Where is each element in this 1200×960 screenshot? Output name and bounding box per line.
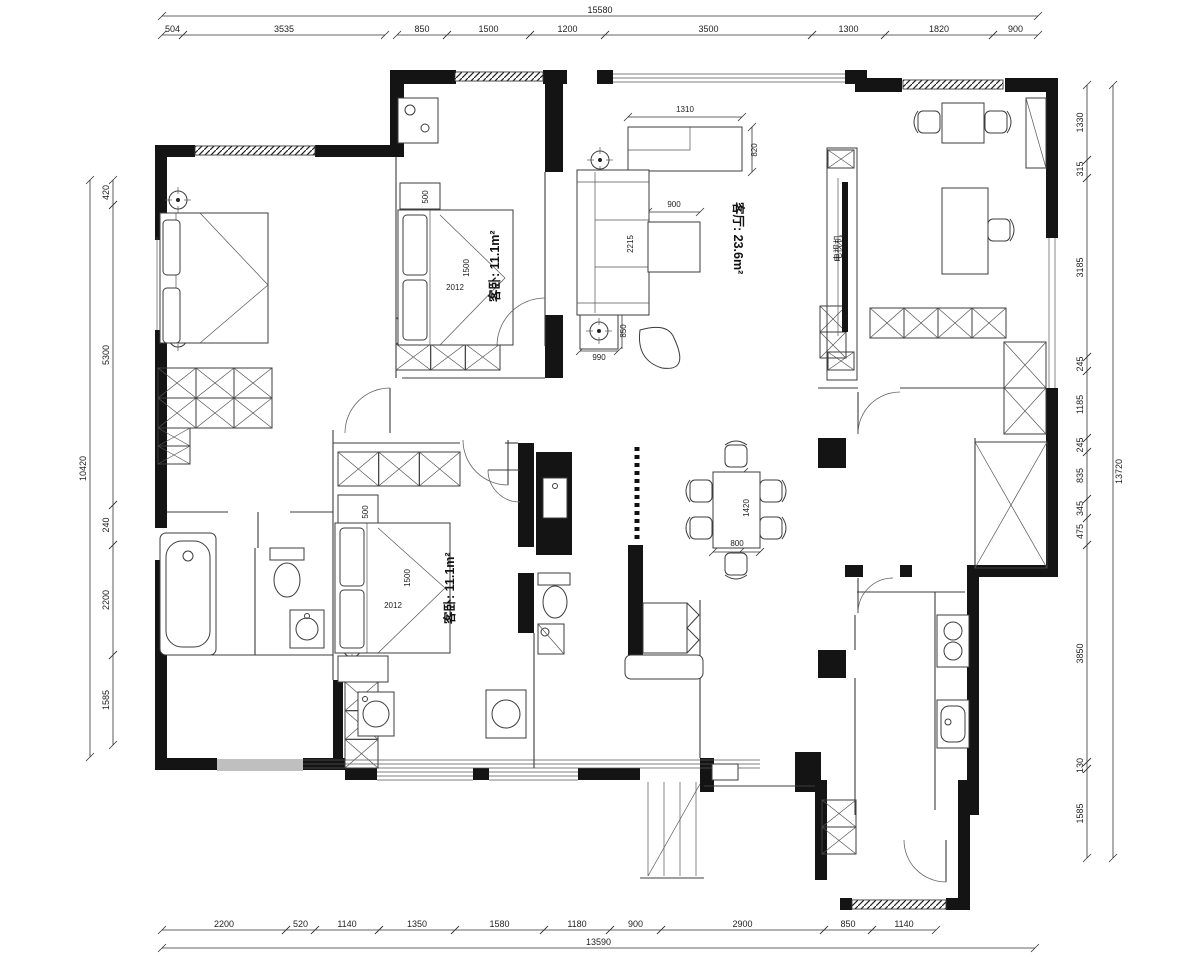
wall-segment: [545, 315, 563, 378]
pillow: [403, 280, 427, 340]
pillow: [163, 220, 180, 275]
entry-door-mat: [712, 764, 738, 780]
dim-label: 1140: [894, 919, 913, 929]
dim-fan-depth: 850: [619, 324, 628, 338]
wall-segment: [1046, 78, 1058, 238]
dim-coffee-table-width: 900: [667, 200, 681, 209]
wall-segment: [545, 84, 563, 172]
dim-dining-width: 800: [730, 539, 744, 548]
dim-nightstand-top: 500: [421, 190, 430, 204]
pillow: [340, 528, 364, 586]
dim-fan-width: 990: [592, 353, 606, 362]
light-dot: [598, 158, 602, 162]
dim-label: 245: [1075, 437, 1085, 452]
chair: [760, 480, 786, 502]
chair-seat: [760, 480, 782, 502]
dim-bed1-length: 2012: [446, 283, 464, 292]
bedroom-top-label: 客卧: 11.1m²: [487, 230, 502, 303]
wall-segment: [958, 780, 970, 910]
wall-segment: [578, 768, 640, 780]
dim-label: 504: [165, 24, 180, 34]
chair-seat: [725, 445, 747, 467]
dim-label: 130: [1075, 758, 1085, 773]
dim-label: 1500: [478, 24, 498, 34]
wall-segment: [155, 330, 167, 528]
wall-segment: [975, 565, 1058, 577]
chair: [686, 480, 712, 502]
dim-label: 420: [101, 185, 111, 200]
chair-seat: [690, 480, 712, 502]
dresser: [338, 656, 388, 682]
wall-segment: [1046, 388, 1058, 577]
pillow: [163, 288, 180, 343]
chair: [725, 553, 747, 579]
wall-segment: [155, 758, 217, 770]
wall-segment: [818, 650, 846, 678]
wall-segment: [543, 70, 567, 84]
dim-label: 3500: [698, 24, 718, 34]
sofa: [577, 170, 649, 315]
dim-label: 900: [1008, 24, 1023, 34]
pillow: [403, 215, 427, 275]
wall-segment: [518, 443, 534, 547]
fridge: [643, 603, 687, 653]
dim-label: 1180: [567, 919, 586, 929]
chair-seat: [918, 111, 940, 133]
wall-segment: [473, 768, 489, 780]
dim-label: 245: [1075, 356, 1085, 371]
dim-label: 1140: [337, 919, 356, 929]
dim-label: 3850: [1075, 643, 1085, 663]
chair-seat: [985, 111, 1007, 133]
wall-segment: [333, 680, 343, 768]
dim-label: 1300: [838, 24, 858, 34]
dim-label: 1185: [1075, 395, 1085, 414]
dim-label: 13590: [586, 937, 611, 947]
dim-label: 2200: [101, 590, 111, 610]
wall-segment: [900, 565, 912, 577]
window-hatch: [903, 80, 1003, 89]
kitchen-sink: [937, 700, 969, 748]
bedroom-mid-label: 客卧: 11.1m²: [442, 552, 457, 625]
dim-label: 1200: [557, 24, 577, 34]
stove: [937, 615, 969, 667]
dim-tv-cabinet-depth: 820: [750, 143, 759, 157]
toilet2-tank: [538, 573, 570, 585]
dim-dining-length: 1420: [742, 499, 751, 517]
dim-label: 5300: [101, 345, 111, 365]
dim-label: 2200: [214, 919, 234, 929]
dim-label: 10420: [78, 456, 88, 481]
dim-nightstand-mid: 500: [361, 505, 370, 519]
dim-bed2-length: 2012: [384, 601, 402, 610]
floor-plan-canvas: 1558050435358501500120035001300182090022…: [0, 0, 1200, 960]
dim-bed2-width: 1500: [403, 569, 412, 587]
paper-background: [0, 0, 1200, 960]
entry-bench: [625, 655, 703, 679]
window-hatch: [852, 900, 946, 909]
dim-label: 475: [1075, 524, 1085, 539]
chair: [725, 441, 747, 467]
dim-label: 3185: [1075, 257, 1085, 277]
light-dot: [597, 329, 601, 333]
wall-segment: [597, 70, 613, 84]
wall-segment: [536, 545, 572, 555]
side-cabinet: [628, 127, 742, 171]
dim-label: 1820: [929, 24, 949, 34]
dim-sofa-length: 2215: [626, 235, 635, 253]
dim-label: 850: [840, 919, 855, 929]
wall-segment: [946, 898, 958, 910]
dim-label: 835: [1075, 468, 1085, 483]
dim-label: 900: [628, 919, 643, 929]
toilet-tank: [270, 548, 304, 560]
wall-segment: [628, 545, 643, 657]
dining-table: [713, 472, 760, 548]
chair-seat: [690, 517, 712, 539]
dim-label: 850: [414, 24, 429, 34]
dim-label: 2900: [732, 919, 752, 929]
wall-segment: [855, 78, 902, 92]
nightstand: [400, 183, 440, 209]
dim-label: 240: [101, 517, 111, 532]
coffee-table: [648, 222, 700, 272]
chair: [985, 111, 1011, 133]
dim-label: 13720: [1114, 459, 1124, 484]
window-hatch: [455, 72, 543, 81]
light-dot: [176, 198, 180, 202]
wall-segment: [345, 768, 377, 780]
dim-label: 3535: [274, 24, 294, 34]
wall-segment: [967, 565, 979, 815]
dim-label: 1585: [101, 690, 111, 710]
wall-segment: [845, 565, 863, 577]
dim-bed1-width: 1500: [462, 259, 471, 277]
dim-label: 345: [1075, 501, 1085, 516]
tv-wall-label: 电视机: [832, 235, 843, 262]
dim-tv-cabinet-width: 1310: [676, 105, 694, 114]
dim-label: 315: [1075, 161, 1085, 176]
study-table: [942, 103, 984, 143]
chair: [914, 111, 940, 133]
chair-seat: [725, 553, 747, 575]
pillow: [340, 590, 364, 648]
nightstand: [338, 495, 378, 523]
dim-label: 520: [293, 919, 308, 929]
chair: [686, 517, 712, 539]
chair: [988, 219, 1014, 241]
wall-segment: [815, 780, 827, 880]
wall-segment: [315, 145, 392, 157]
dim-label: 1585: [1075, 803, 1085, 823]
window-hatch: [195, 146, 315, 155]
wash-basin: [290, 610, 324, 648]
dim-label: 1350: [407, 919, 427, 929]
dim-label: 15580: [587, 5, 612, 15]
chair: [760, 517, 786, 539]
wall-segment: [518, 573, 534, 633]
chair-seat: [988, 219, 1010, 241]
wall-segment: [818, 438, 846, 468]
wall-segment: [840, 898, 852, 910]
chair-seat: [760, 517, 782, 539]
wall-segment: [390, 70, 456, 84]
living-room-label: 客厅: 23.6m²: [731, 201, 746, 274]
desk-master: [942, 188, 988, 274]
dim-label: 1330: [1075, 112, 1085, 132]
dim-label: 1580: [489, 919, 509, 929]
desk: [398, 98, 438, 143]
